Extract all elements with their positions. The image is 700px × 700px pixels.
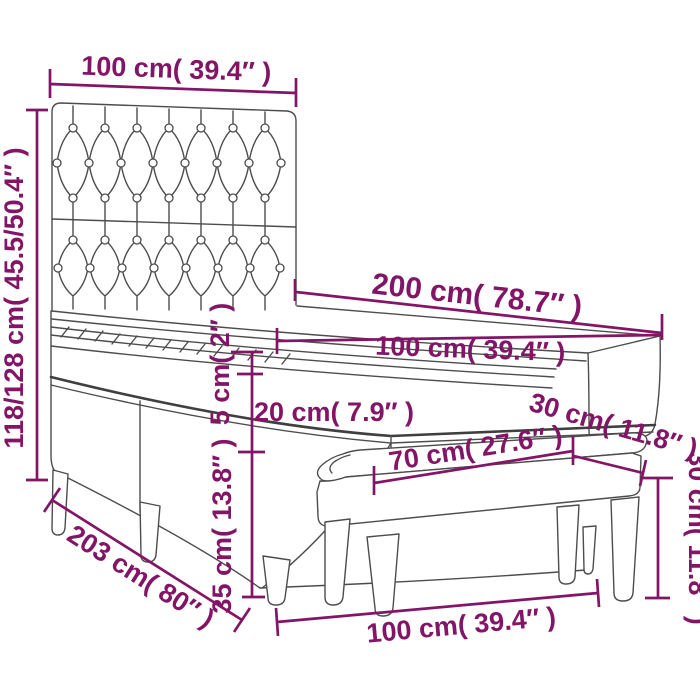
dim-mattress-width-label: 100 cm( 39.4″ ) (375, 331, 566, 368)
dim-topper-thickness-label: 5 cm( 2″ ) (205, 303, 235, 425)
dim-bench-height-line (643, 478, 673, 598)
headboard (52, 103, 296, 311)
headboard-seam (52, 219, 296, 227)
dimension-diagram: 100 cm( 39.4″ ) 118/128 cm( 45.5/50.4″ )… (0, 0, 700, 700)
dimension-annotations: 100 cm( 39.4″ ) 118/128 cm( 45.5/50.4″ )… (0, 51, 700, 649)
dim-overall-height: 118/128 cm( 45.5/50.4″ ) (0, 110, 48, 480)
dim-bench-height-label: 30 cm( 11.8″ ) (683, 451, 700, 625)
bench-leg-front-left (325, 519, 350, 605)
bed-leg (140, 502, 160, 562)
dim-overall-height-label: 118/128 cm( 45.5/50.4″ ) (0, 147, 29, 448)
bench-leg-back-right (557, 505, 579, 584)
dim-mattress-width: 100 cm( 39.4″ ) (277, 328, 662, 367)
dim-mattress-thickness: 20 cm( 7.9″ ) (238, 374, 414, 452)
dim-mattress-thickness-label: 20 cm( 7.9″ ) (254, 397, 414, 427)
diagram-canvas: 100 cm( 39.4″ ) 118/128 cm( 45.5/50.4″ )… (0, 0, 700, 700)
bench-leg-back-left (367, 534, 399, 616)
dim-bench-height: 30 cm( 11.8″ ) (643, 451, 700, 625)
dim-bed-length: 200 cm( 78.7″ ) (295, 268, 662, 340)
dim-base-height-line (242, 452, 265, 597)
dim-bed-width-label: 100 cm( 39.4″ ) (365, 601, 557, 648)
bed-leg (583, 526, 596, 574)
tuft-buttons-bottom-panel (54, 236, 284, 272)
dim-headboard-width: 100 cm( 39.4″ ) (50, 51, 296, 107)
dim-base-height: 35 cm( 13.8″ ) (207, 438, 265, 613)
dim-base-height-label: 35 cm( 13.8″ ) (207, 438, 237, 613)
base-foot-bottom-edge (260, 570, 586, 588)
dim-overall-height-line (26, 110, 48, 480)
tuft-buttons-top-panel (53, 124, 285, 202)
bed-leg (263, 556, 290, 605)
dim-headboard-width-label: 100 cm( 39.4″ ) (81, 51, 272, 88)
tufting-pleats-bottom (73, 220, 265, 310)
bench-leg-front-right (611, 497, 639, 601)
